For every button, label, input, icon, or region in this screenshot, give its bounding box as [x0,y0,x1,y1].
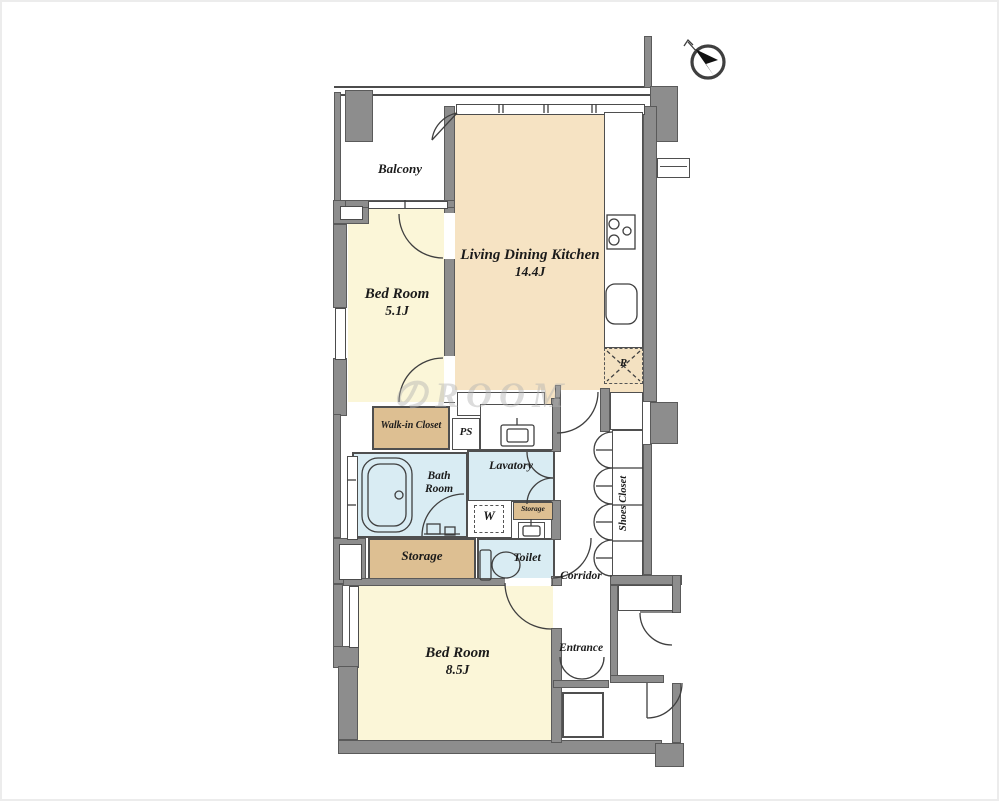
wall-inset [339,544,362,580]
wall [345,90,373,142]
floorplan-canvas: Balcony Living Dining Kitchen 14.4J Bed … [0,0,999,801]
wall-inset [340,206,363,220]
wall-step [655,743,684,767]
window-bath [347,456,358,540]
hand-basin-box [518,522,545,539]
kitchen-counter [604,112,643,348]
wall [333,584,343,648]
pipe-space-exterior [657,158,690,178]
wall [610,675,664,683]
ps-label: PS [452,426,480,439]
bath-line1: Bath [410,470,468,483]
entrance-alcove [618,585,673,611]
bedroom-large-label: Bed Room 8.5J [380,645,535,678]
wall [610,585,618,677]
compass-icon [684,40,724,78]
bedroom-small-label: Bed Room 5.1J [348,286,446,319]
bedroom-large-size: 8.5J [380,662,535,678]
bath-label: Bath Room [410,470,468,496]
bedroom-small-size: 5.1J [348,303,446,319]
bath-line2: Room [410,483,468,496]
wall [334,92,341,202]
genkan-step [562,692,604,738]
wall [672,683,681,743]
watermark: のROOM [392,366,571,418]
window-bedroom-large [349,586,359,648]
wall [333,358,347,416]
door-arc-entrance-hall [560,657,604,679]
wall [333,224,347,308]
walk-in-closet-label: Walk-in Closet [372,420,450,432]
lavatory-label: Lavatory [467,459,555,473]
window-bedroom-small [368,201,448,209]
wall [553,680,609,688]
entrance-label: Entrance [552,642,610,655]
pipe-space-inner-line [660,166,687,167]
bedroom-large-name: Bed Room [380,645,535,662]
wall [333,646,359,668]
wall [333,414,341,538]
refrigerator-label: R [604,357,643,370]
ldk-name: Living Dining Kitchen [450,247,610,264]
wall [644,36,652,88]
toilet-label: Toilet [498,551,556,565]
washer-label: W [473,509,505,524]
balcony-label: Balcony [350,162,450,177]
storage-label: Storage [368,549,476,564]
wall [600,388,610,432]
ldk-size: 14.4J [450,264,610,280]
balcony-railing [334,86,652,96]
wall-right [643,106,657,402]
wall-bottom [338,740,662,754]
shoes-closet-label: Shoes Closet [618,440,638,566]
door-gap [505,578,551,586]
storage-small-label: Storage [513,505,553,514]
wall [338,666,358,740]
bedroom-small-name: Bed Room [348,286,446,303]
ldk-label: Living Dining Kitchen 14.4J [450,247,610,280]
wall [672,575,681,613]
wall [650,402,678,444]
corridor-label: Corridor [552,570,610,583]
wall [643,444,652,575]
cabinet-corridor [610,392,643,430]
window [335,308,346,360]
folding-door-arcs [594,432,612,576]
door-arc-alcove [640,612,673,645]
